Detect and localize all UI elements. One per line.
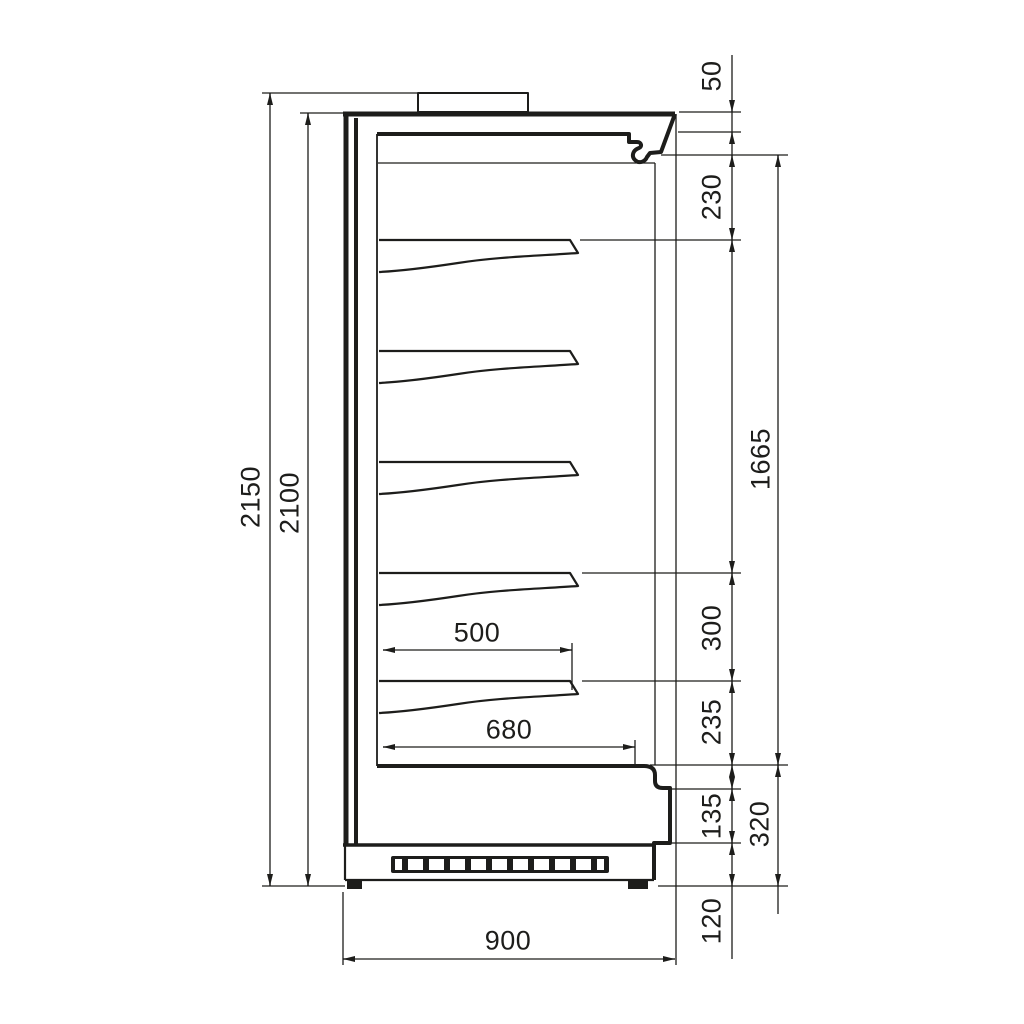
dim-bottom-deck-depth: 680 [486, 715, 533, 746]
shelf-2 [379, 351, 578, 383]
cabinet-drawing [0, 0, 1024, 1024]
dim-kick-panel: 135 [697, 793, 728, 840]
dim-display-opening: 1665 [746, 428, 777, 490]
dim-lower-section: 320 [745, 801, 776, 848]
shelf-3 [379, 462, 578, 494]
ventilation-grille [391, 856, 609, 873]
dim-body-height: 2100 [275, 472, 306, 534]
top-unit-box [418, 93, 528, 112]
dim-base-grille: 120 [697, 898, 728, 945]
cabinet-outline [343, 93, 676, 965]
dim-shelf-to-deck: 235 [697, 699, 728, 746]
dim-canopy-front: 50 [697, 60, 728, 91]
canopy-profile [377, 114, 675, 162]
dim-canopy-to-first-shelf: 230 [697, 174, 728, 221]
shelf-1 [379, 240, 578, 272]
dim-shelf-depth-upper: 500 [454, 618, 501, 649]
dim-overall-height: 2150 [236, 466, 267, 528]
shelf-5 [379, 681, 578, 713]
foot-left [347, 880, 362, 889]
shelf-4 [379, 573, 578, 605]
feet [347, 880, 648, 889]
dim-shelf-spacing: 300 [697, 605, 728, 652]
technical-drawing-canvas: 2150 2100 50 230 1665 300 235 135 320 12… [0, 0, 1024, 1024]
foot-right [628, 880, 648, 889]
dim-overall-depth: 900 [485, 926, 532, 957]
